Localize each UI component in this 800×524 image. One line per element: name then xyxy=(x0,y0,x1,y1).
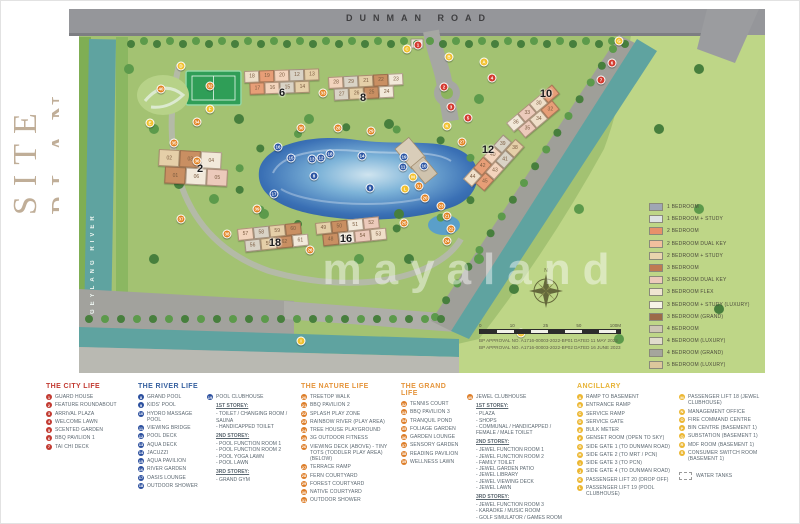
legend-item: ISIDE GATE 3 (TO PCN) xyxy=(577,460,677,466)
legend-item-marker: 18 xyxy=(138,483,144,489)
legend-item-label: SERVICE GATE xyxy=(586,419,624,425)
legend-item: GSIDE GATE 1 (TO DUNMAN ROAD) xyxy=(577,444,677,450)
unit-stack-number: 59 xyxy=(275,228,281,234)
legend-item-label: SPLASH PLAY ZONE xyxy=(310,411,360,417)
map-marker-32: 32 xyxy=(206,82,215,91)
unit-stack-number: 22 xyxy=(378,77,384,83)
legend-item: PBIN CENTRE (BASEMENT 1) xyxy=(679,425,779,431)
legend-item: CSERVICE RAMP xyxy=(577,411,677,417)
ancillary-heading: ANCILLARY xyxy=(577,383,677,390)
legend-item-label: OUTDOOR SHOWER xyxy=(147,483,198,489)
legend-item: 1GUARD HOUSE xyxy=(46,394,134,400)
legend-item-label: 3G OUTDOOR FITNESS xyxy=(310,435,368,441)
legend-item-label: FIRE COMMAND CENTRE xyxy=(688,417,751,423)
unit-stack-number: 13 xyxy=(309,72,315,78)
tower-block: 282921222327262524 xyxy=(328,73,404,101)
legend-item-marker: E xyxy=(577,427,583,433)
legend-item-marker: 33 xyxy=(401,409,407,415)
legend-jewel-clubhouse: 40JEWEL CLUBHOUSE1ST STOREY:- PLAZA- SHO… xyxy=(467,383,571,521)
legend-item: 14JACUZZI xyxy=(138,450,204,456)
legend-item-label: BBQ PAVILION 1 xyxy=(55,435,95,441)
scale-tick: 25 xyxy=(543,323,548,328)
legend-item-label: GARDEN LOUNGE xyxy=(410,434,455,440)
unit-stack: 13 xyxy=(304,68,319,81)
block-number: 10 xyxy=(540,88,552,100)
unit-stack-number: 36 xyxy=(513,120,519,126)
unit-stack-number: 49 xyxy=(321,225,327,231)
unit-stack-number: 18 xyxy=(249,74,255,80)
legend-item-label: SIDE GATE 1 (TO DUNMAN ROAD) xyxy=(586,444,670,450)
map-marker-9: 9 xyxy=(366,184,375,193)
legend-item: 35FOLIAGE GARDEN xyxy=(401,426,465,432)
storey-item: - GOLF SIMULATOR / GAMES ROOM xyxy=(476,515,571,521)
unit-type-swatch xyxy=(649,301,663,309)
unit-type-swatch xyxy=(649,361,663,369)
legend-item: 7TAI CHI DECK xyxy=(46,444,134,450)
unit-type-row: 4 BEDROOM xyxy=(649,325,761,333)
legend-item: 21BBQ PAVILION 2 xyxy=(301,402,399,408)
legend-item-marker: 13 xyxy=(138,442,144,448)
legend-nature-life: THE NATURE LIFE 20TREETOP WALK21BBQ PAVI… xyxy=(301,383,399,506)
legend-item-marker: C xyxy=(577,411,583,417)
legend-item-marker: 36 xyxy=(401,434,407,440)
legend-item-marker: 22 xyxy=(301,411,307,417)
map-marker-25: 25 xyxy=(400,219,409,228)
legend-item: 15AQUA PAVILION xyxy=(138,458,204,464)
legend-item-label: CONSUMER SWITCH ROOM (BASEMENT 1) xyxy=(688,450,779,463)
map-marker-39: 39 xyxy=(253,205,262,214)
unit-stack: 18 xyxy=(244,70,259,83)
map-marker-28: 28 xyxy=(334,124,343,133)
unit-type-label: 1 BEDROOM xyxy=(667,204,699,210)
site-plan-page: SITE PLAN xyxy=(0,0,800,524)
map-marker-13: 13 xyxy=(308,155,317,164)
legend-item-label: OASIS LOUNGE xyxy=(147,475,186,481)
watermark: mayaland xyxy=(179,245,765,295)
unit-stack: 53 xyxy=(370,228,387,242)
legend-item: SCONSUMER SWITCH ROOM (BASEMENT 1) xyxy=(679,450,779,463)
legend-item: OFIRE COMMAND CENTRE xyxy=(679,417,779,423)
unit-type-swatch xyxy=(649,313,663,321)
clubhouse-title-label: POOL CLUBHOUSE xyxy=(216,394,264,400)
legend-item: DSERVICE GATE xyxy=(577,419,677,425)
legend-item-label: BBQ PAVILION 3 xyxy=(410,409,450,415)
unit-stack-number: 32 xyxy=(548,106,554,112)
legend-item-label: ENTRANCE RAMP xyxy=(586,402,631,408)
unit-stack: 24 xyxy=(379,86,395,99)
legend-item: 28FERN COURTYARD xyxy=(301,473,399,479)
storey-heading: 2ND STOREY: xyxy=(476,439,571,445)
legend-item: 12POOL DECK xyxy=(138,433,204,439)
map-marker-29: 29 xyxy=(367,127,376,136)
legend-item-marker: B xyxy=(577,402,583,408)
map-marker-K: K xyxy=(443,122,452,131)
map-marker-20: 20 xyxy=(421,194,430,203)
legend-item-marker: P xyxy=(679,425,685,431)
unit-stack-number: 01 xyxy=(173,172,179,178)
storey-heading: 3RD STOREY: xyxy=(216,469,299,475)
map-marker-27: 27 xyxy=(458,138,467,147)
legend-item: HSIDE GATE 2 (TO MRT / PCN) xyxy=(577,452,677,458)
map-marker-6: 6 xyxy=(608,59,617,68)
legend-item-label: MDF ROOM (BASEMENT 1) xyxy=(688,442,754,448)
legend-item: 24TREE HOUSE PLAYGROUND xyxy=(301,427,399,433)
unit-stack-number: 19 xyxy=(264,73,270,79)
unit-type-swatch xyxy=(649,325,663,333)
unit-stack: 29 xyxy=(343,75,359,88)
map-marker-2: 2 xyxy=(440,83,449,92)
legend-item: JSIDE GATE 4 (TO DUNMAN ROAD) xyxy=(577,468,677,474)
unit-stack: 12 xyxy=(289,69,304,82)
legend-item-marker: 28 xyxy=(301,473,307,479)
unit-stack-number: 38 xyxy=(512,145,518,151)
unit-stack-number: 02 xyxy=(166,155,172,161)
unit-stack: 22 xyxy=(373,74,389,87)
legend-item-label: READING PAVILION xyxy=(410,451,458,457)
map-marker-30: 30 xyxy=(297,124,306,133)
legend-item-label: TREETOP WALK xyxy=(310,394,350,400)
city-life-heading: THE CITY LIFE xyxy=(46,383,134,390)
legend-item-label: SENSORY GARDEN xyxy=(410,442,458,448)
storey-heading: 2ND STOREY: xyxy=(216,433,299,439)
legend-item-marker: 20 xyxy=(301,394,307,400)
legend-item-label: TENNIS COURT xyxy=(410,401,449,407)
legend-item-marker: 2 xyxy=(46,402,52,408)
legend-item-marker: G xyxy=(577,444,583,450)
map-marker-15: 15 xyxy=(287,154,296,163)
legend-item-marker: 6 xyxy=(46,435,52,441)
storey-item: - TOILET / CHANGING ROOM / SAUNA xyxy=(216,411,299,424)
legend-item-label: TREE HOUSE PLAYGROUND xyxy=(310,427,381,433)
map-marker-B: B xyxy=(445,53,454,62)
unit-stack: 02 xyxy=(158,149,180,167)
grand-life-heading: THE GRAND LIFE xyxy=(401,383,465,397)
clubhouse-title: 40JEWEL CLUBHOUSE xyxy=(467,394,571,400)
unit-stack: 16 xyxy=(265,82,280,95)
legend-item: 30NATIVE COURTYARD xyxy=(301,489,399,495)
map-marker-33: 33 xyxy=(319,89,328,98)
legend-item-label: PASSENGER LIFT 19 (POOL CLUBHOUSE) xyxy=(586,485,677,498)
legend-item-marker: 30 xyxy=(301,489,307,495)
map-marker-40: 40 xyxy=(157,85,166,94)
unit-stack: 19 xyxy=(259,70,274,83)
unit-stack-number: 20 xyxy=(279,73,285,79)
unit-type-row: 3 BEDROOM (GRAND) xyxy=(649,313,761,321)
storey-heading: 1ST STOREY: xyxy=(476,403,571,409)
legend-item-marker: O xyxy=(679,417,685,423)
geylang-river-label: GEYLANG RIVER xyxy=(90,114,96,314)
unit-type-label: 2 BEDROOM xyxy=(667,228,699,234)
legend-item-marker: 37 xyxy=(401,442,407,448)
approval-line: BP APPROVAL NO. A1716-00003-2022-BP01 DA… xyxy=(479,337,679,344)
unit-type-label: 4 BEDROOM xyxy=(667,326,699,332)
legend-item-label: FOLIAGE GARDEN xyxy=(410,426,456,432)
unit-type-row: 5 BEDROOM (LUXURY) xyxy=(649,361,761,369)
map-marker-F: F xyxy=(206,105,215,114)
map-marker-D: D xyxy=(177,62,186,71)
map-marker-36: 36 xyxy=(193,157,202,166)
legend-panel: THE CITY LIFE 1GUARD HOUSE2FEATURE ROUND… xyxy=(1,379,800,524)
legend-item-label: VIEWING BRIDGE xyxy=(147,425,191,431)
legend-item: 4WELCOME LAWN xyxy=(46,419,134,425)
map-marker-34: 34 xyxy=(193,118,202,127)
unit-stack: 20 xyxy=(274,69,289,82)
unit-stack-number: 61 xyxy=(297,237,303,243)
unit-stack-number: 15 xyxy=(285,84,291,90)
legend-item-marker: 39 xyxy=(401,459,407,465)
map-marker-1: 1 xyxy=(414,41,423,50)
unit-type-row: 3 BEDROOM + STUDY (LUXURY) xyxy=(649,301,761,309)
legend-item-marker: Q xyxy=(679,433,685,439)
legend-item: 16RIVER GARDEN xyxy=(138,466,204,472)
storey-heading: 1ST STOREY: xyxy=(216,403,299,409)
unit-stack-number: 28 xyxy=(333,80,339,86)
river-life-heading: THE RIVER LIFE xyxy=(138,383,204,390)
scale-tick: 0 xyxy=(479,323,482,328)
legend-item-label: SIDE GATE 2 (TO MRT / PCN) xyxy=(586,452,657,458)
legend-item-marker: 34 xyxy=(401,418,407,424)
unit-stack-number: 50 xyxy=(337,223,343,229)
legend-item-label: PASSENGER LIFT 18 (JEWEL CLUBHOUSE) xyxy=(688,394,779,407)
unit-type-row: 1 BEDROOM xyxy=(649,203,761,211)
unit-stack: 25 xyxy=(364,86,380,99)
legend-item: 22SPLASH PLAY ZONE xyxy=(301,411,399,417)
water-tanks-label: WATER TANKS xyxy=(696,473,732,479)
map-marker-16: 16 xyxy=(274,143,283,152)
legend-item: 29FOREST COURTYARD xyxy=(301,481,399,487)
legend-item-label: RIVER GARDEN xyxy=(147,466,186,472)
legend-item-marker: 19 xyxy=(207,394,213,400)
legend-item: LPASSENGER LIFT 19 (POOL CLUBHOUSE) xyxy=(577,485,677,498)
legend-item: 32TENNIS COURT xyxy=(401,401,465,407)
unit-stack-number: 12 xyxy=(294,72,300,78)
legend-item: 3ARRIVAL PLAZA xyxy=(46,411,134,417)
legend-item-marker: 24 xyxy=(301,427,307,433)
unit-stack-number: 35 xyxy=(525,126,531,132)
unit-stack: 05 xyxy=(206,169,228,187)
map-marker-37: 37 xyxy=(177,215,186,224)
unit-stack-number: 30 xyxy=(536,100,542,106)
legend-item: 39WELLNESS LAWN xyxy=(401,459,465,465)
block-number: 16 xyxy=(340,233,352,245)
legend-item-marker: 4 xyxy=(46,419,52,425)
unit-stack-number: 34 xyxy=(536,116,542,122)
legend-item: BENTRANCE RAMP xyxy=(577,402,677,408)
storey-item: - POOL LAWN xyxy=(216,460,299,466)
unit-type-label: 1 BEDROOM + STUDY xyxy=(667,216,723,222)
legend-item: 23RAINBOW RIVER (PLAY AREA) xyxy=(301,419,399,425)
legend-grand-life: THE GRAND LIFE 32TENNIS COURT33BBQ PAVIL… xyxy=(401,383,465,467)
legend-item-marker: 23 xyxy=(301,419,307,425)
unit-stack-number: 60 xyxy=(291,226,297,232)
legend-item-label: KIDS' POOL xyxy=(147,402,176,408)
map-marker-12: 12 xyxy=(317,154,326,163)
legend-item-marker: 3 xyxy=(46,411,52,417)
legend-item-marker: S xyxy=(679,450,685,456)
legend-item-label: OUTDOOR SHOWER xyxy=(310,497,361,503)
legend-item-marker: I xyxy=(577,460,583,466)
legend-item: KPASSENGER LIFT 20 (DROP OFF) xyxy=(577,477,677,483)
unit-stack: 17 xyxy=(250,82,265,95)
legend-item-marker: 38 xyxy=(401,451,407,457)
legend-item-label: RAINBOW RIVER (PLAY AREA) xyxy=(310,419,385,425)
storey-item: - COMMUNAL / HANDICAPPED / FEMALE / MALE… xyxy=(476,424,571,437)
legend-item-label: POOL DECK xyxy=(147,433,177,439)
unit-stack-number: 17 xyxy=(255,86,261,92)
scale-line xyxy=(479,329,621,334)
unit-type-label: 5 BEDROOM (LUXURY) xyxy=(667,362,726,368)
unit-stack-number: 53 xyxy=(375,231,381,237)
unit-stack: 27 xyxy=(334,88,350,101)
unit-type-swatch xyxy=(649,215,663,223)
legend-item-marker: N xyxy=(679,409,685,415)
legend-river-life: THE RIVER LIFE 8GRAND POOL9KIDS' POOL10H… xyxy=(138,383,204,491)
legend-item: MPASSENGER LIFT 18 (JEWEL CLUBHOUSE) xyxy=(679,394,779,407)
legend-item: 5SCENTED GARDEN xyxy=(46,427,134,433)
unit-stack-number: 23 xyxy=(393,76,399,82)
legend-item-marker: 15 xyxy=(138,458,144,464)
map-marker-G: G xyxy=(615,37,624,46)
unit-type-swatch xyxy=(649,203,663,211)
legend-item: 31OUTDOOR SHOWER xyxy=(301,497,399,503)
map-marker-31: 31 xyxy=(415,182,424,191)
scale-tick: 50 xyxy=(576,323,581,328)
legend-item-marker: 26 xyxy=(301,444,307,450)
legend-item-label: ARRIVAL PLAZA xyxy=(55,411,94,417)
legend-item-label: SCENTED GARDEN xyxy=(55,427,103,433)
unit-stack: 04 xyxy=(200,151,222,169)
map-marker-E: E xyxy=(146,119,155,128)
map-marker-35: 35 xyxy=(170,139,179,148)
unit-stack-number: 52 xyxy=(369,220,375,226)
legend-item: 18OUTDOOR SHOWER xyxy=(138,483,204,489)
unit-stack-number: 44 xyxy=(470,174,476,180)
legend-item: 253G OUTDOOR FITNESS xyxy=(301,435,399,441)
water-tanks-swatch xyxy=(679,472,692,480)
unit-stack: 14 xyxy=(295,81,310,94)
unit-stack-number: 26 xyxy=(354,91,360,97)
legend-item: 8GRAND POOL xyxy=(138,394,204,400)
unit-stack-number: 39 xyxy=(500,141,506,147)
legend-item-label: RAMP TO BASEMENT xyxy=(586,394,639,400)
unit-stack-number: 27 xyxy=(339,91,345,97)
site-plan-map: N DUNMAN ROAD GEYLANG RIVER 181920121317… xyxy=(59,9,765,373)
legend-item-label: GRAND POOL xyxy=(147,394,181,400)
legend-item-label: BIN CENTRE (BASEMENT 1) xyxy=(688,425,757,431)
legend-ancillary-2: MPASSENGER LIFT 18 (JEWEL CLUBHOUSE)NMAN… xyxy=(679,383,779,480)
legend-item-label: TRANQUIL POND xyxy=(410,418,452,424)
approval-line: BP APPROVAL NO. A1716-00003-2022-BP02 DA… xyxy=(479,344,679,351)
legend-item: NMANAGEMENT OFFICE xyxy=(679,409,779,415)
legend-item-label: JACUZZI xyxy=(147,450,168,456)
map-marker-C: C xyxy=(403,45,412,54)
legend-item-marker: 21 xyxy=(301,402,307,408)
map-marker-23: 23 xyxy=(437,202,446,211)
legend-item-label: TAI CHI DECK xyxy=(55,444,89,450)
legend-item-marker: A xyxy=(577,394,583,400)
unit-type-row: 2 BEDROOM xyxy=(649,227,761,235)
legend-item: 13AQUA DECK xyxy=(138,442,204,448)
legend-item: QSUBSTATION (BASEMENT 1) xyxy=(679,433,779,439)
legend-item-label: NATIVE COURTYARD xyxy=(310,489,362,495)
scale-tick: 10 xyxy=(510,323,515,328)
map-marker-7: 7 xyxy=(597,76,606,85)
legend-item-label: WELCOME LAWN xyxy=(55,419,98,425)
unit-stack-number: 43 xyxy=(492,167,498,173)
clubhouse-title: 19POOL CLUBHOUSE xyxy=(207,394,299,400)
legend-item-marker: 9 xyxy=(138,402,144,408)
map-marker-18: 18 xyxy=(326,150,335,159)
unit-stack-number: 41 xyxy=(502,156,508,162)
legend-ancillary: ANCILLARY ARAMP TO BASEMENTBENTRANCE RAM… xyxy=(577,383,677,499)
legend-item: 20TREETOP WALK xyxy=(301,394,399,400)
legend-item-marker: 31 xyxy=(301,497,307,503)
legend-item-label: SIDE GATE 4 (TO DUNMAN ROAD) xyxy=(586,468,670,474)
unit-stack-number: 24 xyxy=(384,89,390,95)
legend-item: RMDF ROOM (BASEMENT 1) xyxy=(679,442,779,448)
unit-stack-number: 57 xyxy=(243,231,249,237)
legend-item: ARAMP TO BASEMENT xyxy=(577,394,677,400)
unit-stack-number: 45 xyxy=(482,179,488,185)
unit-type-label: 3 BEDROOM (GRAND) xyxy=(667,314,723,320)
legend-item: 36GARDEN LOUNGE xyxy=(401,434,465,440)
legend-item-label: FOREST COURTYARD xyxy=(310,481,364,487)
unit-stack-number: 04 xyxy=(208,157,214,163)
legend-item-marker: 29 xyxy=(301,481,307,487)
legend-item-marker: 5 xyxy=(46,427,52,433)
legend-item-label: HYDRO MASSAGE POOL xyxy=(147,411,204,424)
unit-stack-number: 33 xyxy=(524,110,530,116)
legend-item: 2FEATURE ROUNDABOUT xyxy=(46,402,134,408)
unit-stack: 01 xyxy=(165,166,187,184)
unit-type-swatch xyxy=(649,227,663,235)
legend-item-marker: 1 xyxy=(46,394,52,400)
legend-item-label: VIEWING DECK (ABOVE) - TINY TOTS (TODDLE… xyxy=(310,444,399,463)
legend-item-marker: 17 xyxy=(138,475,144,481)
legend-item-marker: 35 xyxy=(401,426,407,432)
scale-bar: 0102550100M xyxy=(479,323,621,334)
legend-item-marker: 11 xyxy=(138,425,144,431)
legend-item: FGENSET ROOM (OPEN TO SKY) xyxy=(577,435,677,441)
legend-item-marker: 8 xyxy=(138,394,144,400)
block-number: 12 xyxy=(482,144,494,156)
legend-item-label: SERVICE RAMP xyxy=(586,411,625,417)
legend-item-marker: J xyxy=(577,468,583,474)
map-marker-5: 5 xyxy=(464,114,473,123)
map-marker-L: L xyxy=(401,185,410,194)
unit-stack-number: 54 xyxy=(359,233,365,239)
legend-item: 10HYDRO MASSAGE POOL xyxy=(138,411,204,424)
legend-item-marker: 7 xyxy=(46,444,52,450)
legend-item-label: AQUA DECK xyxy=(147,442,177,448)
bp-approval-text: BP APPROVAL NO. A1716-00003-2022-BP01 DA… xyxy=(479,337,679,352)
legend-item: 6BBQ PAVILION 1 xyxy=(46,435,134,441)
map-marker-21: 21 xyxy=(443,212,452,221)
legend-item: 27TERRACE RAMP xyxy=(301,464,399,470)
legend-item-marker: M xyxy=(679,394,685,400)
storey-item: - JEWEL LAWN xyxy=(476,485,571,491)
legend-item-label: FERN COURTYARD xyxy=(310,473,358,479)
legend-item: 37SENSORY GARDEN xyxy=(401,442,465,448)
map-marker-I: I xyxy=(297,337,306,346)
legend-item-label: GENSET ROOM (OPEN TO SKY) xyxy=(586,435,664,441)
legend-item-marker: 10 xyxy=(138,411,144,417)
legend-item-label: GUARD HOUSE xyxy=(55,394,93,400)
dunman-road-label: DUNMAN ROAD xyxy=(209,13,629,23)
map-marker-22: 22 xyxy=(447,225,456,234)
legend-pool-clubhouse: 19POOL CLUBHOUSE1ST STOREY:- TOILET / CH… xyxy=(207,383,299,483)
legend-item: 34TRANQUIL POND xyxy=(401,418,465,424)
